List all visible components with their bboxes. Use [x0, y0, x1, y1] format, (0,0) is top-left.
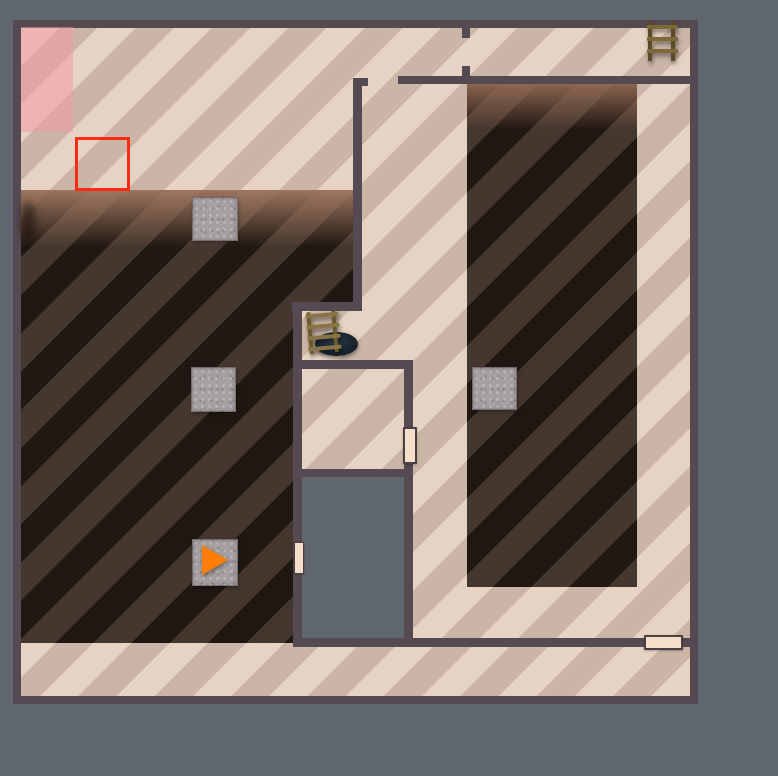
- wall-shadow-smudge: [21, 202, 35, 242]
- wall-corridor-left: [353, 78, 362, 311]
- crate-mid-right[interactable]: [472, 367, 517, 410]
- void-area: [302, 477, 404, 638]
- player-marker[interactable]: [202, 545, 228, 575]
- wall-corridor-left-lip: [353, 78, 368, 86]
- shadow-region-right: [467, 84, 637, 587]
- wall-bottom-corridor-top: [293, 638, 690, 647]
- ladder-icon-hatch[interactable]: [305, 310, 343, 355]
- wall-top-doorframe-upper: [462, 27, 470, 38]
- door-bottom-corridor[interactable]: [644, 635, 683, 650]
- wall-top-room-bottom: [398, 76, 690, 84]
- wall-small-room-bottom: [302, 469, 409, 477]
- wall-mid-vertical-right: [404, 360, 413, 647]
- wall-alcove-bottom: [302, 360, 413, 369]
- ladder-icon-top-right[interactable]: [647, 21, 679, 61]
- selection-box: [75, 137, 130, 191]
- pink-zone: [21, 27, 73, 132]
- crate-mid-left[interactable]: [191, 367, 236, 412]
- door-void-west[interactable]: [294, 542, 304, 574]
- wall-alcove-top: [292, 302, 362, 311]
- door-small-room-east[interactable]: [403, 427, 417, 464]
- level-map[interactable]: [13, 20, 698, 704]
- wall-mid-vertical-left: [293, 302, 302, 647]
- ladder-glyph: [647, 21, 679, 61]
- crate-top[interactable]: [192, 197, 238, 241]
- shadow-stripes: [467, 84, 637, 587]
- wall-top-doorframe-lower: [462, 66, 470, 76]
- background: [0, 0, 778, 776]
- ladder-glyph: [305, 310, 343, 355]
